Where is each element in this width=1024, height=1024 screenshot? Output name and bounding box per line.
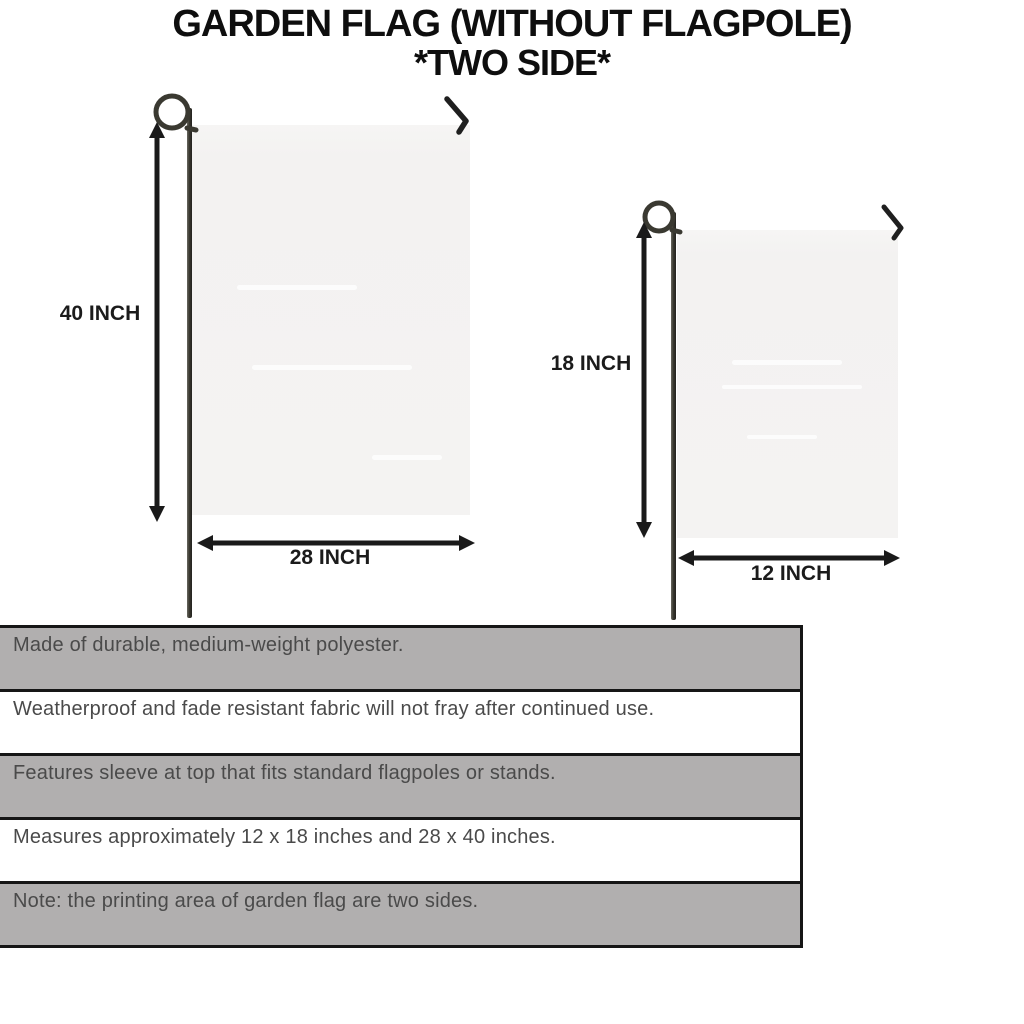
small-flagpole [671,212,676,620]
feature-row-weatherproof: Weatherproof and fade resistant fabric w… [0,692,800,756]
flag-wrinkle [747,435,817,439]
small-flag-hook-icon [877,202,911,244]
features-table: Made of durable, medium-weight polyester… [0,625,803,948]
large-flag-hook-icon [440,92,476,138]
flag-wrinkle [722,385,862,389]
large-width-label: 28 INCH [270,546,390,570]
feature-text: Features sleeve at top that fits standar… [13,762,556,784]
feature-text: Weatherproof and fade resistant fabric w… [13,698,654,720]
feature-row-polyester: Made of durable, medium-weight polyester… [0,628,800,692]
feature-text: Measures approximately 12 x 18 inches an… [13,826,556,848]
flag-wrinkle [252,365,412,370]
feature-text: Note: the printing area of garden flag a… [13,890,478,912]
large-flag-cloth [192,125,470,515]
flag-wrinkle [372,455,442,460]
small-flag-cloth [677,230,898,538]
small-width-label: 12 INCH [731,562,851,586]
large-height-label: 40 INCH [50,302,150,326]
feature-text: Made of durable, medium-weight polyester… [13,634,404,656]
large-flagpole [187,108,192,618]
small-height-label: 18 INCH [541,352,641,376]
flag-wrinkle [732,360,842,365]
feature-row-measures: Measures approximately 12 x 18 inches an… [0,820,800,884]
small-height-arrow [632,222,656,538]
title-block: GARDEN FLAG (WITHOUT FLAGPOLE) *TWO SIDE… [0,4,1024,82]
feature-row-note: Note: the printing area of garden flag a… [0,884,800,945]
flag-wrinkle [237,285,357,290]
garden-flag-spec-image: GARDEN FLAG (WITHOUT FLAGPOLE) *TWO SIDE… [0,0,1024,1024]
page-subtitle: *TWO SIDE* [0,44,1024,82]
page-title: GARDEN FLAG (WITHOUT FLAGPOLE) [0,4,1024,44]
feature-row-sleeve: Features sleeve at top that fits standar… [0,756,800,820]
